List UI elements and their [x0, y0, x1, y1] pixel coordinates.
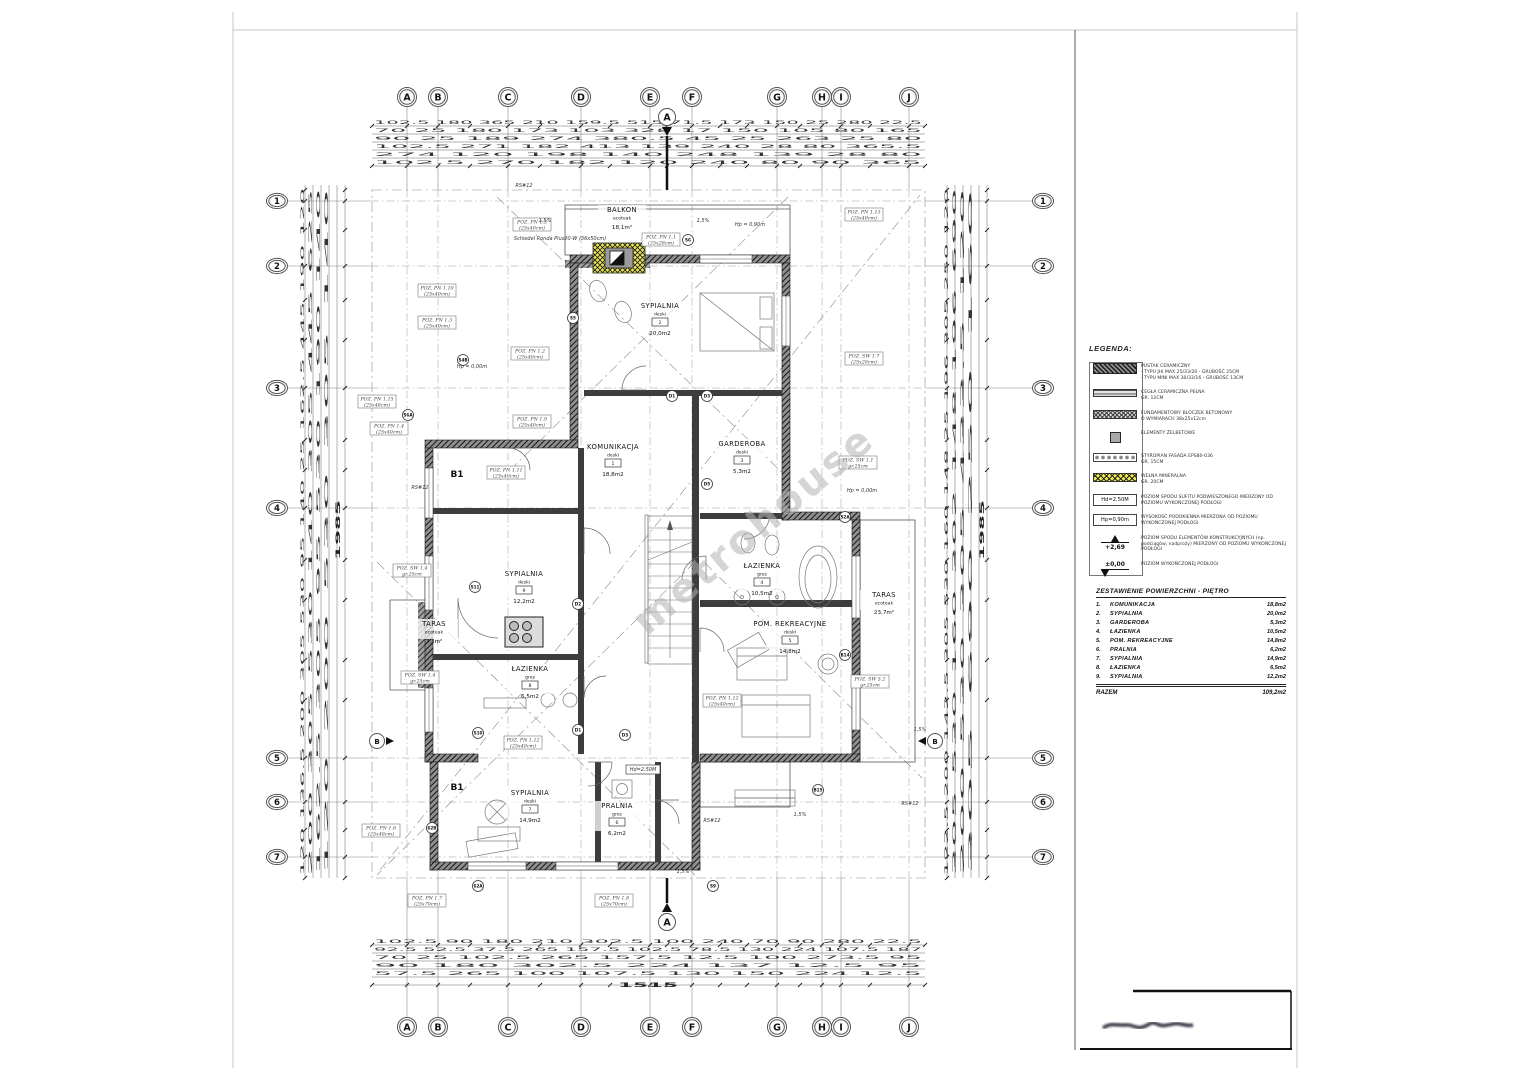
- svg-text:(25x40cm): (25x40cm): [424, 323, 450, 330]
- grid-bubbles: AABBCCDDEEFFGGHHIIJJ11223344556677: [267, 88, 1054, 1037]
- svg-text:200 530 305 433.5 120: 200 530 305 433.5 120: [960, 184, 966, 876]
- svg-text:3: 3: [274, 384, 280, 394]
- room-label: SYPIALNIAdeski714,9m2: [506, 788, 554, 824]
- plan-note: 1,5%: [914, 727, 927, 733]
- room-label: ŁAZIENKAgres86,5m2: [506, 664, 554, 700]
- svg-text:D1: D1: [669, 394, 675, 399]
- svg-text:D2: D2: [575, 602, 581, 607]
- svg-text:305 690 250 160: 305 690 250 160: [968, 183, 974, 876]
- svg-text:1: 1: [274, 197, 280, 207]
- svg-text:1,5%: 1,5%: [539, 218, 552, 224]
- svg-text:B: B: [932, 738, 937, 746]
- detail-marker: S6A: [403, 410, 414, 421]
- legend-item: ELEMENTY ŻELBETOWE: [1089, 430, 1291, 445]
- svg-text:SYPIALNIA: SYPIALNIA: [505, 570, 543, 578]
- grid-number-bubble: 6: [1033, 794, 1054, 809]
- legend-symbol-hp-icon: Hp=0,90m: [1093, 514, 1137, 526]
- plan-note: Hp = 0,00m: [847, 488, 877, 494]
- legend-item: FUNDAMENTOWY BLOCZEK BETONOWY O WYMIARAC…: [1089, 410, 1291, 423]
- detail-marker: D2: [573, 599, 584, 610]
- area-table-total: RAZEM 109,2m2: [1096, 684, 1286, 696]
- svg-text:GARDEROBA: GARDEROBA: [718, 440, 765, 448]
- signature-scribble: [1103, 1023, 1193, 1028]
- svg-text:H: H: [818, 92, 826, 103]
- room-label: POM. REKREACYJNEdeski514,8m2: [753, 619, 826, 655]
- room-label: TARASecoteak23,7m²: [860, 590, 908, 616]
- detail-marker: S10: [473, 728, 484, 739]
- svg-text:57.5 265 100 107.5 130 15: 57.5 265 100 107.5 130 150 224 12.5: [374, 971, 924, 977]
- svg-text:POZ. SW 1.4: POZ. SW 1.4: [404, 673, 436, 679]
- legend-item-text: PUSTAK CERAMICZNY - TYPU JHI MAX 25/33/2…: [1141, 363, 1243, 382]
- svg-text:162.5 305 95 530 190 140: 162.5 305 95 530 190 140: [316, 185, 322, 876]
- poz-label: POZ. PN 1.2(25x40cm): [511, 347, 549, 361]
- svg-text:C: C: [505, 92, 512, 103]
- svg-text:S9: S9: [710, 884, 716, 889]
- grid-letter-bubble: F: [683, 88, 702, 107]
- legend-item: CEGŁA CERAMICZNA PEŁNA GR. 12CM: [1089, 389, 1291, 402]
- windows: [425, 255, 860, 870]
- grid-number-bubble: 7: [1033, 849, 1054, 864]
- legend-item-text: POZIOM WYKOŃCZONEJ PODŁOGI: [1141, 561, 1218, 568]
- legend-item-text: POZIOM SPODU SUFITU PODWIESZONEGO MIERZO…: [1141, 494, 1291, 507]
- svg-text:3: 3: [741, 458, 744, 464]
- svg-text:A: A: [403, 1022, 411, 1033]
- svg-text:S6A: S6A: [403, 413, 413, 418]
- grid-number-bubble: 5: [1033, 750, 1054, 765]
- grid-letter-bubble: J: [900, 88, 919, 107]
- svg-text:B: B: [374, 738, 379, 746]
- legend-item-text: STYROPIAN FASADA EPS80-036 GR. 15CM: [1141, 453, 1213, 466]
- svg-text:120 136.5 200 305 530 95: 120 136.5 200 305 530 95 140 25 162.5 44…: [300, 187, 306, 876]
- svg-text:70 25 180 173 103 328 17: 70 25 180 173 103 328 17 150 105 80 165: [374, 128, 923, 134]
- svg-text:POZ. SW 1.4: POZ. SW 1.4: [396, 566, 428, 572]
- legend-symbol-wool-icon: [1093, 473, 1137, 482]
- svg-text:5: 5: [1040, 754, 1046, 764]
- b1-marker: B1: [450, 470, 463, 480]
- poz-label: POZ. PN 1.12(25x40cm): [703, 694, 741, 708]
- legend-symbol-rc-icon: [1093, 430, 1137, 445]
- svg-text:A: A: [403, 92, 411, 103]
- svg-text:PRALNIA: PRALNIA: [601, 802, 633, 810]
- poz-label: POZ. PN 1.8(25x70cm): [595, 894, 633, 908]
- svg-text:70 25 102.5 265 157.5 12.: 70 25 102.5 265 157.5 12.5 100 273.5 95: [374, 955, 924, 961]
- svg-text:4: 4: [761, 580, 764, 586]
- grid-letter-bubble: B: [429, 88, 448, 107]
- grid-letter-bubble: I: [832, 88, 851, 107]
- svg-text:F: F: [689, 1022, 696, 1033]
- area-table-row: 6.PRALNIA6,2m2: [1096, 646, 1286, 655]
- svg-text:2: 2: [659, 320, 662, 326]
- poz-label: POZ. PN 1.13(25x40cm): [845, 208, 883, 222]
- legend-item-text: FUNDAMENTOWY BLOCZEK BETONOWY O WYMIARAC…: [1141, 410, 1232, 423]
- svg-text:8: 8: [529, 683, 532, 689]
- svg-text:B14: B14: [840, 653, 849, 658]
- svg-text:122.5 200 142.5 305 530 1: 122.5 200 142.5 305 530 160 148 25 196 3…: [944, 187, 950, 876]
- svg-text:3: 3: [1040, 384, 1046, 394]
- room-label: KOMUNIKACJAdeski118,8m2: [587, 442, 639, 478]
- section-marker-b-right: B: [918, 734, 943, 749]
- grid-letter-bubble: D: [572, 1018, 591, 1037]
- grid-number-bubble: 2: [1033, 258, 1054, 273]
- poz-label: POZ. PN 1.12(25x40cm): [504, 736, 542, 750]
- grid-letter-bubble: H: [813, 88, 832, 107]
- grid-number-bubble: 4: [1033, 500, 1054, 515]
- svg-text:1985: 1985: [335, 500, 342, 560]
- legend-item-text: POZIOM SPODU ELEMENTÓW KONSTRUKCYJNYCH (…: [1141, 535, 1291, 554]
- plan-note: Schiedel Ronda Plus20-W (36x50cm): [514, 236, 606, 242]
- section-letter: A: [663, 918, 671, 929]
- svg-text:18,1m²: 18,1m²: [612, 224, 632, 231]
- svg-text:1: 1: [612, 461, 615, 467]
- poz-label: POZ. SW 1.7(25x20cm): [845, 352, 883, 366]
- svg-text:RS#12: RS#12: [411, 485, 428, 491]
- svg-text:POZ. PN 1.15: POZ. PN 1.15: [359, 397, 393, 403]
- svg-text:1: 1: [1040, 197, 1046, 207]
- svg-text:POZ. PN 1.10: POZ. PN 1.10: [419, 286, 453, 292]
- svg-text:C: C: [505, 1022, 512, 1033]
- svg-text:gr.25cm: gr.25cm: [410, 679, 430, 685]
- svg-text:RS#12: RS#12: [515, 183, 532, 189]
- svg-text:62A: 62A: [473, 884, 483, 889]
- svg-text:S4B: S4B: [458, 358, 467, 363]
- svg-text:deski: deski: [736, 450, 748, 456]
- svg-text:274 120 198 140 248 139: 274 120 198 140 248 139 28 80: [374, 152, 924, 158]
- svg-text:D: D: [577, 92, 585, 103]
- svg-text:H: H: [818, 1022, 826, 1033]
- svg-text:POZ. SW 1.7: POZ. SW 1.7: [848, 354, 881, 360]
- legend-item: ±0,00POZIOM WYKOŃCZONEJ PODŁOGI: [1089, 561, 1291, 577]
- svg-text:S5: S5: [570, 316, 576, 321]
- svg-text:5: 5: [274, 754, 280, 764]
- grid-number-bubble: 5: [267, 750, 288, 765]
- svg-text:S2A: S2A: [840, 515, 850, 520]
- legend-item: Hd=2,50MPOZIOM SPODU SUFITU PODWIESZONEG…: [1089, 494, 1291, 507]
- grid-number-bubble: 7: [267, 849, 288, 864]
- detail-marker: D3: [702, 391, 713, 402]
- grid-number-bubble: 3: [1033, 380, 1054, 395]
- detail-marker: S2A: [840, 512, 851, 523]
- b1-marker: B1: [450, 783, 463, 793]
- svg-text:BALKON: BALKON: [607, 206, 637, 214]
- svg-text:gres: gres: [757, 572, 768, 578]
- svg-text:POZ. PN 1.7: POZ. PN 1.7: [411, 896, 443, 902]
- svg-text:(25x48cm): (25x48cm): [368, 831, 394, 838]
- detail-marker: 62B: [427, 823, 438, 834]
- legend-item-text: CEGŁA CERAMICZNA PEŁNA GR. 12CM: [1141, 389, 1205, 402]
- floor-plan-svg: 102.5 180 365 210 159.5 515 71.5 173 150…: [0, 0, 1529, 1080]
- svg-text:I: I: [839, 92, 843, 103]
- plan-note: RS#12: [901, 801, 918, 807]
- grid-letter-bubble: I: [832, 1018, 851, 1037]
- grid-number-bubble: 6: [267, 794, 288, 809]
- svg-text:Hp = 0,90m: Hp = 0,90m: [735, 222, 765, 228]
- detail-marker: D1: [573, 725, 584, 736]
- svg-text:6: 6: [274, 798, 280, 808]
- poz-label: POZ. SW 5.2gr.25cm: [851, 675, 889, 689]
- svg-text:1,5%: 1,5%: [914, 727, 927, 733]
- svg-text:Hd=2,50M: Hd=2,50M: [630, 767, 657, 773]
- svg-text:(25x48cm): (25x48cm): [364, 402, 390, 409]
- grid-letter-bubble: B: [429, 1018, 448, 1037]
- room-label: TARASecoteak7,3m²: [410, 619, 458, 645]
- svg-text:TARAS: TARAS: [871, 591, 896, 599]
- svg-text:POM. REKREACYJNE: POM. REKREACYJNE: [753, 620, 826, 628]
- svg-text:(25x40cm): (25x40cm): [519, 225, 545, 232]
- svg-text:7: 7: [274, 853, 280, 863]
- area-table-title: ZESTAWIENIE POWIERZCHNI - PIĘTRO: [1096, 588, 1286, 598]
- room-label: SYPIALNIAdeski912,2m2: [500, 569, 548, 605]
- svg-text:2: 2: [274, 262, 280, 272]
- svg-text:deski: deski: [784, 630, 796, 636]
- svg-text:14,9m2: 14,9m2: [519, 818, 540, 824]
- grid-number-bubble: 4: [267, 500, 288, 515]
- svg-text:gr.25cm: gr.25cm: [860, 683, 880, 689]
- svg-text:POZ. PN 1.4: POZ. PN 1.4: [373, 424, 404, 430]
- svg-text:90 180 302.5 224 137 12.5: 90 180 302.5 224 137 12.5 95: [374, 963, 924, 969]
- svg-text:(25x28cm): (25x28cm): [648, 240, 674, 247]
- svg-text:deski: deski: [654, 312, 666, 318]
- area-table-row: 3.GARDEROBA5,3m2: [1096, 619, 1286, 628]
- detail-marker: D3: [620, 730, 631, 741]
- svg-text:(25x40cm): (25x40cm): [851, 215, 877, 222]
- plan-note: Hp = 0,00m: [457, 364, 487, 370]
- svg-text:gr.25cm: gr.25cm: [402, 572, 422, 578]
- svg-text:S6: S6: [685, 238, 691, 243]
- grid-letter-bubble: E: [641, 1018, 660, 1037]
- svg-text:B15: B15: [813, 788, 822, 793]
- legend-item-text: ELEMENTY ŻELBETOWE: [1141, 430, 1195, 437]
- svg-text:62B: 62B: [427, 826, 436, 831]
- area-table-row: 9.SYPIALNIA12,2m2: [1096, 673, 1286, 682]
- detail-marker: 62A: [473, 881, 484, 892]
- area-table-row: 1.KOMUNIKACJA18,8m2: [1096, 601, 1286, 610]
- detail-marker: B15: [813, 785, 824, 796]
- plan-note: 1,5%: [697, 218, 710, 224]
- svg-text:(25x40cm): (25x40cm): [493, 473, 519, 480]
- svg-text:B: B: [434, 92, 441, 103]
- plan-note: RS#12: [703, 818, 720, 824]
- svg-text:gres: gres: [612, 812, 623, 818]
- grid-letter-bubble: D: [572, 88, 591, 107]
- svg-text:deski: deski: [524, 799, 536, 805]
- grid-number-bubble: 1: [267, 193, 288, 208]
- svg-text:POZ. SW 5.2: POZ. SW 5.2: [854, 677, 886, 683]
- svg-text:102.5 180 365 210 159.5 5: 102.5 180 365 210 159.5 515 71.5 173 150…: [374, 120, 923, 126]
- svg-text:7,3m²: 7,3m²: [426, 638, 443, 645]
- room-label: GARDEROBAdeski35,3m2: [718, 439, 766, 475]
- svg-text:I: I: [839, 1022, 843, 1033]
- svg-text:POZ. PN 1.2: POZ. PN 1.2: [514, 349, 545, 355]
- poz-label: POZ. SW 1.4gr.25cm: [393, 564, 431, 578]
- grid-number-bubble: 2: [267, 258, 288, 273]
- grid-letter-bubble: J: [900, 1018, 919, 1037]
- svg-text:5,3m2: 5,3m2: [733, 469, 751, 475]
- svg-text:90 25 189 274 380.5 45 2: 90 25 189 274 380.5 45 25 263 25 80: [374, 136, 924, 142]
- legend-item-text: WYSOKOŚĆ PODOKIENNA MIERZONA OD POZIOMU …: [1141, 514, 1291, 527]
- svg-text:(25x40cm): (25x40cm): [376, 429, 402, 436]
- exterior-walls: [425, 255, 860, 870]
- svg-text:1515: 1515: [618, 982, 678, 989]
- grid-letter-bubble: C: [499, 1018, 518, 1037]
- legend-item: +2,69POZIOM SPODU ELEMENTÓW KONSTRUKCYJN…: [1089, 535, 1291, 554]
- area-table-row: 7.SYPIALNIA14,9m2: [1096, 655, 1286, 664]
- area-table-row: 2.SYPIALNIA20,0m2: [1096, 610, 1286, 619]
- svg-text:(25x70cm): (25x70cm): [601, 901, 627, 908]
- legend-item: Hp=0,90mWYSOKOŚĆ PODOKIENNA MIERZONA OD …: [1089, 514, 1291, 527]
- svg-text:102.5 90 180 210 302.5 10: 102.5 90 180 210 302.5 100 240 70 90 280…: [374, 939, 923, 945]
- svg-text:POZ. PN 1.8: POZ. PN 1.8: [598, 896, 629, 902]
- poz-label: POZ. PN 1.7(25x70cm): [408, 894, 446, 908]
- detail-marker: S6: [683, 235, 694, 246]
- grid-letter-bubble: A: [398, 1018, 417, 1037]
- svg-text:6,2m2: 6,2m2: [608, 831, 626, 837]
- grid-letter-bubble: G: [768, 88, 787, 107]
- svg-text:1,5%: 1,5%: [677, 869, 690, 875]
- poz-label: POZ. PN 1.4(25x40cm): [370, 422, 408, 436]
- legend-panel: LEGENDA: PUSTAK CERAMICZNY - TYPU JHI MA…: [1089, 344, 1291, 584]
- legend-symbol-block-icon: [1093, 410, 1137, 419]
- svg-text:(25x40cm): (25x40cm): [519, 422, 545, 429]
- detail-marker: D5: [702, 479, 713, 490]
- poz-label: POZ. PN 1.9(25x40cm): [513, 415, 551, 429]
- svg-text:D3: D3: [622, 733, 628, 738]
- svg-text:120 200 530 305 140: 120 200 530 305 140: [324, 184, 330, 876]
- svg-text:POZ. PN 1.12: POZ. PN 1.12: [704, 696, 738, 702]
- svg-text:D5: D5: [704, 482, 710, 487]
- svg-text:S10: S10: [474, 731, 483, 736]
- svg-text:1,5%: 1,5%: [697, 218, 710, 224]
- grid-letter-bubble: E: [641, 88, 660, 107]
- svg-text:POZ. PN 1.11: POZ. PN 1.11: [488, 468, 522, 474]
- svg-text:5: 5: [789, 638, 792, 644]
- legend-symbol-lvl0-icon: ±0,00: [1093, 561, 1137, 577]
- section-marker-b-left: B: [370, 734, 395, 749]
- svg-text:S11: S11: [471, 585, 480, 590]
- room-label: SYPIALNIAdeski220,0m2: [636, 301, 684, 337]
- legend-symbol-hd-icon: Hd=2,50M: [1093, 494, 1137, 506]
- svg-text:gres: gres: [525, 675, 536, 681]
- plan-note: 1,5%: [794, 812, 807, 818]
- svg-text:Hp = 0,00m: Hp = 0,00m: [457, 364, 487, 370]
- grid-number-bubble: 3: [267, 380, 288, 395]
- svg-text:KOMUNIKACJA: KOMUNIKACJA: [587, 443, 639, 451]
- svg-text:POZ. PN 1.1: POZ. PN 1.1: [645, 235, 676, 241]
- svg-text:deski: deski: [607, 453, 619, 459]
- svg-text:6: 6: [1040, 798, 1046, 808]
- svg-text:7: 7: [1040, 853, 1046, 863]
- svg-text:POZ. PN 1.9: POZ. PN 1.9: [516, 417, 547, 423]
- svg-text:1985: 1985: [979, 500, 986, 560]
- svg-text:92.5 52.5 37.5 265 157.5: 92.5 52.5 37.5 265 157.5 102.5 78.5 130 …: [374, 947, 923, 953]
- svg-text:14,8m2: 14,8m2: [779, 649, 800, 655]
- legend-symbol-lvl-icon: +2,69: [1093, 535, 1137, 551]
- plan-note: RS#12: [411, 485, 428, 491]
- plan-note: RS#12: [515, 183, 532, 189]
- grid-number-bubble: 1: [1033, 193, 1054, 208]
- detail-marker: D1: [667, 391, 678, 402]
- svg-text:4: 4: [274, 504, 280, 514]
- legend-item-text: WEŁNA MINERALNA GR. 20CM: [1141, 473, 1186, 486]
- grid-letter-bubble: A: [398, 88, 417, 107]
- svg-text:TARAS: TARAS: [421, 620, 446, 628]
- area-table-panel: ZESTAWIENIE POWIERZCHNI - PIĘTRO 1.KOMUN…: [1096, 588, 1286, 696]
- grid-letter-bubble: F: [683, 1018, 702, 1037]
- grid-letter-bubble: G: [768, 1018, 787, 1037]
- svg-text:102.5 271 182 413 139 240: 102.5 271 182 413 139 240 28 80 365.5: [374, 144, 924, 150]
- legend-item: WEŁNA MINERALNA GR. 20CM: [1089, 473, 1291, 486]
- svg-text:SYPIALNIA: SYPIALNIA: [641, 302, 679, 310]
- svg-text:305 530 160 302 148 196: 305 530 160 302 148 196 690: [952, 185, 958, 876]
- drawing-sheet: 102.5 180 365 210 159.5 515 71.5 173 150…: [0, 0, 1529, 1080]
- svg-text:ecoteak: ecoteak: [875, 601, 894, 607]
- poz-label: POZ. SW 1.4gr.25cm: [401, 671, 439, 685]
- legend-symbol-eps-icon: [1093, 453, 1137, 462]
- svg-text:J: J: [906, 92, 911, 103]
- svg-text:4: 4: [1040, 504, 1046, 514]
- plan-note: 1,5%: [539, 218, 552, 224]
- svg-text:18,8m2: 18,8m2: [602, 472, 623, 478]
- legend-item: STYROPIAN FASADA EPS80-036 GR. 15CM: [1089, 453, 1291, 466]
- svg-text:B: B: [434, 1022, 441, 1033]
- svg-text:12,2m2: 12,2m2: [513, 599, 534, 605]
- grid-letter-bubble: C: [499, 88, 518, 107]
- total-area: 109,2m2: [1262, 690, 1286, 696]
- section-letter: A: [663, 113, 671, 124]
- detail-marker: S9: [708, 881, 719, 892]
- svg-text:ecoteak: ecoteak: [425, 630, 444, 636]
- poz-label: POZ. PN 1.15(25x48cm): [358, 395, 396, 409]
- svg-text:POZ. PN 1.12: POZ. PN 1.12: [505, 738, 539, 744]
- section-marker-a-bottom: A: [659, 878, 676, 931]
- svg-text:J: J: [906, 1022, 911, 1033]
- svg-text:9: 9: [523, 588, 526, 594]
- svg-text:7: 7: [529, 807, 532, 813]
- svg-text:(25x40cm): (25x40cm): [517, 354, 543, 361]
- svg-text:102.5 270 182 120 240 80: 102.5 270 182 120 240 80 90 365: [374, 160, 924, 166]
- svg-text:10,5m2: 10,5m2: [751, 591, 772, 597]
- title-block: [1080, 991, 1292, 1049]
- svg-text:(25x20cm): (25x20cm): [851, 359, 877, 366]
- legend-title: LEGENDA:: [1089, 344, 1291, 353]
- area-table-rows: 1.KOMUNIKACJA18,8m22.SYPIALNIA20,0m23.GA…: [1096, 601, 1286, 681]
- svg-text:2: 2: [1040, 262, 1046, 272]
- plan-note: Hp = 0,90m: [735, 222, 765, 228]
- svg-text:D1: D1: [575, 728, 581, 733]
- svg-text:ŁAZIENKA: ŁAZIENKA: [511, 665, 549, 673]
- svg-text:Hp = 0,00m: Hp = 0,00m: [847, 488, 877, 494]
- plan-note: Hd=2,50M: [626, 765, 660, 774]
- svg-text:RS#12: RS#12: [901, 801, 918, 807]
- svg-text:6,5m2: 6,5m2: [521, 694, 539, 700]
- poz-label: POZ. PN 1.1(25x28cm): [642, 233, 680, 247]
- svg-text:ecoteak: ecoteak: [613, 216, 632, 222]
- poz-label: POZ. PN 1.11(25x40cm): [487, 466, 525, 480]
- room-label: BALKONecoteak18,1m²: [598, 205, 646, 231]
- svg-text:E: E: [647, 92, 654, 103]
- area-table-row: 8.ŁAZIENKA6,5m2: [1096, 664, 1286, 673]
- legend-symbol-fullbrick-icon: [1093, 389, 1137, 397]
- svg-text:(25x70cm): (25x70cm): [414, 901, 440, 908]
- svg-text:POZ. PN 1.6: POZ. PN 1.6: [365, 826, 396, 832]
- svg-text:Schiedel Ronda Plus20-W (36x50: Schiedel Ronda Plus20-W (36x50cm): [514, 236, 606, 242]
- svg-text:200 305 530 140 305 445: 200 305 530 140 305 445 625: [308, 185, 314, 876]
- svg-text:(25x40cm): (25x40cm): [709, 701, 735, 708]
- svg-text:deski: deski: [518, 580, 530, 586]
- balcony-terrace-outlines: [390, 205, 915, 807]
- svg-text:D3: D3: [704, 394, 710, 399]
- svg-text:SYPIALNIA: SYPIALNIA: [511, 789, 549, 797]
- svg-text:G: G: [773, 92, 781, 103]
